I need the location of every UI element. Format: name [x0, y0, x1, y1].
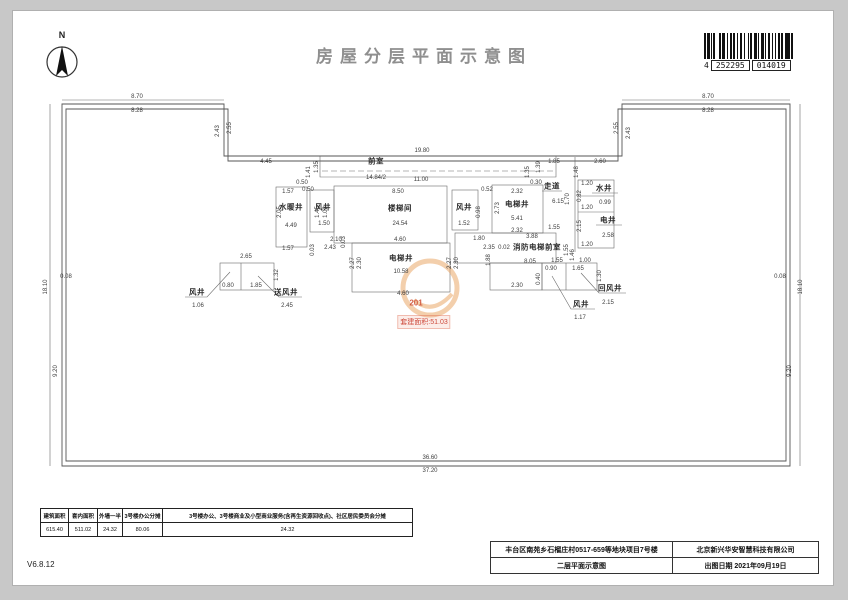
dim-label: 0.82	[577, 190, 583, 202]
room-label: 水井	[596, 184, 612, 192]
dim-label: 11.00	[414, 177, 429, 183]
dim-label: 8.50	[392, 189, 404, 195]
room-label: 风井	[573, 300, 589, 308]
dim-label: 1.57	[282, 189, 294, 195]
room-label: 送风井	[274, 288, 298, 296]
drawing-name: 二层平面示意图	[491, 558, 673, 574]
company-name: 北京新兴华安智慧科技有限公司	[673, 542, 819, 558]
dim-label: 8.70	[702, 94, 714, 100]
dim-label: 2.58	[602, 233, 614, 239]
room-label: 电井	[600, 216, 616, 224]
dim-label: 1.52	[458, 221, 470, 227]
dim-label: 1.30	[597, 270, 603, 282]
dim-label: 2.45	[281, 303, 293, 309]
dim-label: 9.20	[53, 365, 59, 377]
dim-label: 2.27	[447, 257, 453, 269]
dim-label: 1.80	[473, 236, 485, 242]
dim-label: 0.99	[599, 200, 611, 206]
dim-label: 10.58	[393, 269, 408, 275]
dim-label: 18.10	[43, 279, 49, 294]
dim-label: 0.08	[774, 274, 786, 280]
dim-label: 18.10	[798, 279, 804, 294]
dim-label: 1.57	[282, 246, 294, 252]
dim-label: 0.02	[498, 245, 510, 251]
dim-label: 2.30	[511, 283, 523, 289]
area-share-table: 建筑面积 套内面积 外墙一半 3号楼办公分摊 3号楼办公、3号楼商业及小型商业服…	[40, 508, 413, 537]
dim-label: 14.84/2	[366, 175, 386, 181]
dim-label: 24.54	[392, 221, 407, 227]
dim-label: 0.50	[302, 187, 314, 193]
dim-label: 6.15	[552, 199, 564, 205]
share-table-header-row: 建筑面积 套内面积 外墙一半 3号楼办公分摊 3号楼办公、3号楼商业及小型商业服…	[41, 509, 413, 523]
dim-label: 2.43	[324, 245, 336, 251]
dim-label: 1.00	[579, 258, 591, 264]
dim-label: 1.35	[314, 161, 320, 173]
dim-label: 1.55	[548, 225, 560, 231]
dim-label: 1.55	[551, 258, 563, 264]
dim-label: 1.20	[581, 205, 593, 211]
issue-date: 出图日期 2021年09月19日	[673, 558, 819, 574]
dim-label: 2.43	[215, 125, 221, 137]
dim-label: 2.15	[602, 300, 614, 306]
dim-label: 2.32	[511, 228, 523, 234]
dim-label: 2.43	[626, 127, 632, 139]
version-label: V6.8.12	[27, 560, 55, 569]
share-header-cell: 套内面积	[69, 509, 98, 523]
dim-label: 5.41	[511, 216, 523, 222]
dim-label: 8.05	[524, 259, 536, 265]
room-label: 电梯井	[389, 254, 413, 262]
share-value-cell: 511.02	[69, 523, 98, 537]
dim-label: 36.60	[422, 455, 437, 461]
dim-label: 0.90	[545, 266, 557, 272]
share-value-cell: 24.32	[98, 523, 123, 537]
share-header-cell: 3号楼办公、3号楼商业及小型商业服务(含再生资源回收点)、社区居民委员会分摊	[163, 509, 413, 523]
dim-label: 1.35	[525, 166, 531, 178]
dim-label: 2.73	[495, 202, 501, 214]
dim-label: 2.27	[350, 257, 356, 269]
dim-label: 4.60	[397, 291, 409, 297]
room-label: 走道	[544, 182, 560, 190]
dim-label: 1.32	[274, 269, 280, 281]
scanned-drawing-sheet: 房屋分层平面示意图 N 4 252295 014019	[0, 0, 848, 600]
dim-label: 1.39	[536, 161, 542, 173]
dim-label: 0.40	[536, 273, 542, 285]
share-header-cell: 3号楼办公分摊	[123, 509, 163, 523]
room-label: 回风井	[598, 284, 622, 292]
room-label: 水暖井	[279, 203, 303, 211]
dim-label: 2.65	[240, 254, 252, 260]
dim-label: 2.30	[454, 257, 460, 269]
dim-label: 1.06	[192, 303, 204, 309]
dim-label: 1.88	[486, 254, 492, 266]
dim-label: 1.50	[318, 221, 330, 227]
watermark-unit-number: 201	[409, 299, 422, 308]
room-label: 消防电梯前室	[513, 243, 561, 251]
dim-label: 2.15	[577, 220, 583, 232]
dim-label: 0.08	[60, 274, 72, 280]
title-block: 丰台区南苑乡石榴庄村0517-659等地块项目7号楼 北京新兴华安智慧科技有限公…	[490, 541, 819, 574]
dim-label: 4.49	[285, 223, 297, 229]
dim-label: 9.20	[787, 365, 793, 377]
dim-label: 19.80	[414, 148, 429, 154]
dim-label: 1.17	[574, 315, 586, 321]
share-value-cell: 24.32	[163, 523, 413, 537]
dim-label: 37.20	[422, 468, 437, 474]
dim-label: 1.85	[250, 283, 262, 289]
dim-label: 1.70	[565, 193, 571, 205]
share-header-cell: 外墙一半	[98, 509, 123, 523]
dim-label: 4.60	[394, 237, 406, 243]
dim-label: 1.85	[548, 159, 560, 165]
room-label: 风井	[456, 203, 472, 211]
dim-label: 1.46	[570, 249, 576, 261]
dim-label: 0.30	[530, 180, 542, 186]
dim-label: 0.52	[481, 187, 493, 193]
dim-label: 1.65	[572, 266, 584, 272]
room-label: 风井	[189, 288, 205, 296]
dim-label: 0.80	[222, 283, 234, 289]
project-name: 丰台区南苑乡石榴庄村0517-659等地块项目7号楼	[491, 542, 673, 558]
dim-label: 0.03	[341, 236, 347, 248]
dim-label: 1.20	[581, 242, 593, 248]
dim-label: 2.35	[483, 245, 495, 251]
dim-label: 8.28	[131, 108, 143, 114]
dim-label: 1.41	[306, 166, 312, 178]
room-label: 电梯井	[505, 200, 529, 208]
dim-label: 2.60	[594, 159, 606, 165]
share-header-cell: 建筑面积	[41, 509, 69, 523]
room-label: 前室	[368, 157, 384, 165]
dim-label: 1.48	[574, 166, 580, 178]
dim-label: 3.88	[526, 234, 538, 240]
share-value-cell: 615.40	[41, 523, 69, 537]
dim-label: 0.50	[296, 180, 308, 186]
dim-label: 8.28	[702, 108, 714, 114]
dim-label: 2.30	[357, 257, 363, 269]
dim-label: 2.55	[227, 122, 233, 134]
room-label: 楼梯间	[388, 204, 412, 212]
dim-label: 0.03	[310, 244, 316, 256]
dim-label: 0.98	[476, 206, 482, 218]
dim-label: 8.70	[131, 94, 143, 100]
dim-label: 2.32	[511, 189, 523, 195]
share-value-cell: 80.06	[123, 523, 163, 537]
dim-label: 2.55	[614, 122, 620, 134]
share-table-value-row: 615.40 511.02 24.32 80.06 24.32	[41, 523, 413, 537]
room-label: 风井	[315, 203, 331, 211]
watermark-area-text: 套建面积:51.03	[397, 315, 450, 329]
dim-label: 1.20	[581, 181, 593, 187]
dim-label: 4.45	[260, 159, 272, 165]
